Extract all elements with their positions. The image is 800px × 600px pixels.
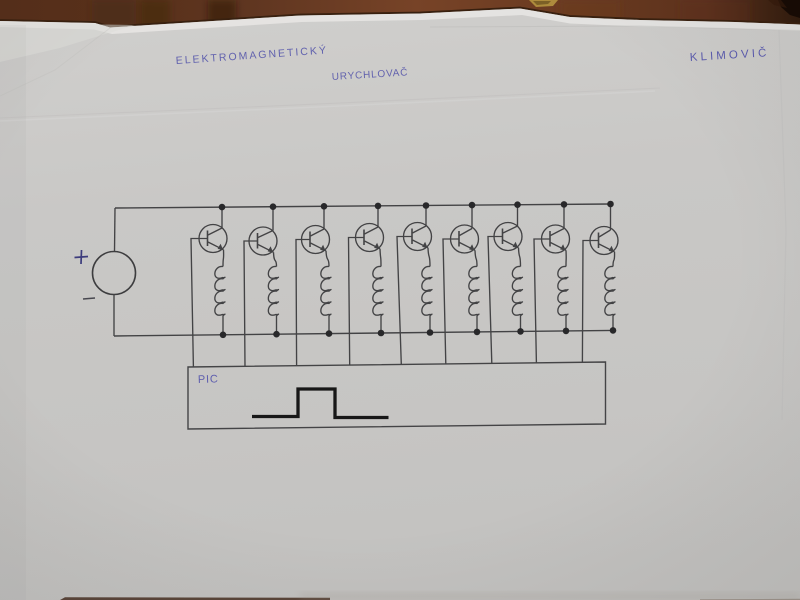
svg-text:PIC: PIC xyxy=(198,373,219,386)
